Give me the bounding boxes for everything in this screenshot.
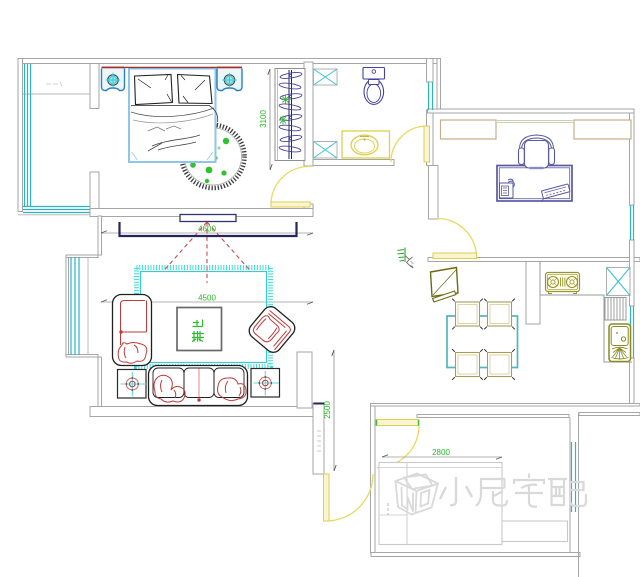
svg-text:2500: 2500 (323, 401, 332, 419)
svg-text:4500: 4500 (198, 294, 216, 303)
svg-text:2800: 2800 (432, 448, 450, 457)
svg-text:3100: 3100 (259, 110, 268, 128)
